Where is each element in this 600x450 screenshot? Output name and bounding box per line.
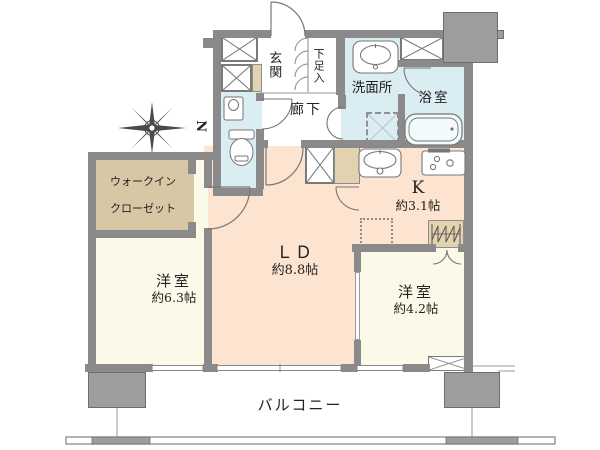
hallway-label: 廊下 (284, 103, 328, 118)
floor-plan: 玄関 下足入 廊下 洗面所 浴室 K 約3.1帖 ＬＤ 約8.8帖 洋室 約6.… (0, 0, 600, 450)
wall-segment (256, 93, 264, 101)
pillar-top-right-tab (497, 30, 504, 39)
wall-segment (88, 152, 221, 160)
pipe-space-top-2 (221, 64, 252, 92)
wall-segment (256, 129, 264, 189)
wall-segment (341, 364, 358, 372)
wall-segment (403, 364, 430, 372)
compass-north-label: N (193, 118, 207, 134)
wall-segment (458, 244, 473, 252)
wall-segment (352, 244, 436, 252)
bedroom63-label: 洋室 (146, 273, 202, 290)
wall-segment (213, 188, 263, 196)
shoe-cabinet-doors (295, 38, 308, 92)
kitchen-area: 約3.1帖 (388, 199, 448, 213)
pillar-bottom-left (88, 372, 146, 408)
balcony-label: バルコニー (245, 397, 355, 414)
wall-segment (398, 94, 405, 142)
pipe-space-bath-top (400, 36, 444, 61)
bedroom42-area: 約4.2帖 (386, 302, 446, 316)
kitchen-label: K (398, 179, 438, 198)
wic-label-line2: クローゼット (97, 203, 189, 215)
wall-segment (213, 30, 221, 195)
refrigerator-space (360, 218, 393, 246)
wall-segment (88, 152, 96, 372)
ld-area: 約8.8帖 (263, 264, 327, 278)
ld-label: ＬＤ (265, 244, 325, 263)
pipe-space-hall (305, 146, 335, 184)
storage-hall (334, 146, 360, 184)
wall-segment (305, 30, 445, 38)
sliding-partition (355, 272, 360, 340)
pillar-top-right (443, 12, 498, 63)
bedroom42-label: 洋室 (388, 284, 444, 301)
wall-segment (213, 30, 271, 38)
pipe-space-top-1 (221, 36, 258, 62)
bedroom63-area: 約6.3帖 (144, 291, 204, 305)
entrance-label: 玄関 (266, 39, 280, 91)
wall-segment (88, 230, 196, 238)
room-walk-in-closet (92, 156, 194, 236)
entrance-door (271, 2, 305, 36)
washroom-label: 洗面所 (343, 81, 401, 96)
wall-segment (338, 140, 473, 148)
wall-segment (338, 95, 346, 109)
wall-segment (464, 60, 473, 372)
wall-segment (204, 158, 212, 188)
pillar-bottom-right (444, 372, 500, 408)
wall-segment (203, 364, 218, 372)
shoe-cabinet-label: 下足入 (312, 39, 324, 93)
wall-segment (85, 364, 153, 372)
wic-label-line1: ウォークイン (97, 176, 189, 188)
wall-segment (204, 228, 212, 368)
wall-segment (256, 140, 268, 148)
compass-icon (118, 102, 186, 154)
wall-segment (354, 244, 361, 272)
wall-segment (188, 158, 196, 174)
storage-strip-entrance (252, 64, 262, 92)
bathroom-label: 浴室 (412, 91, 456, 106)
